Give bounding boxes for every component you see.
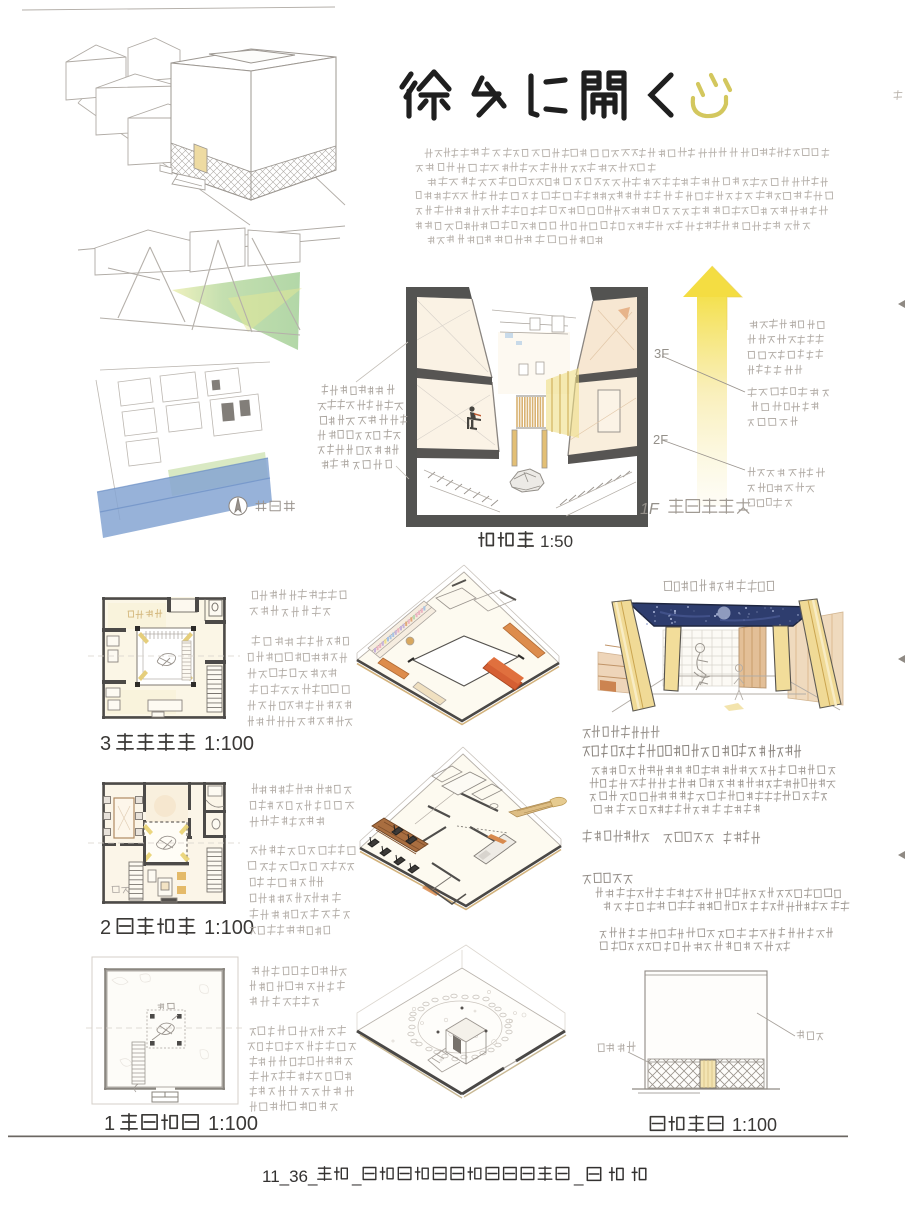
svg-text:1:100: 1:100: [208, 1113, 258, 1135]
svg-text:1:100: 1:100: [204, 733, 254, 755]
svg-text:2: 2: [100, 917, 111, 939]
svg-text:3F: 3F: [654, 346, 669, 361]
svg-text:1:100: 1:100: [204, 917, 254, 939]
svg-text:_: _: [351, 1167, 362, 1186]
svg-text:3: 3: [100, 733, 111, 755]
svg-text:1:50: 1:50: [540, 532, 573, 551]
svg-text:2F: 2F: [653, 432, 668, 447]
svg-text:_: _: [573, 1167, 584, 1186]
svg-text:1:100: 1:100: [732, 1115, 777, 1135]
svg-text:11_36_: 11_36_: [262, 1167, 318, 1186]
svg-text:1F: 1F: [640, 501, 660, 518]
svg-text:1: 1: [104, 1113, 115, 1135]
